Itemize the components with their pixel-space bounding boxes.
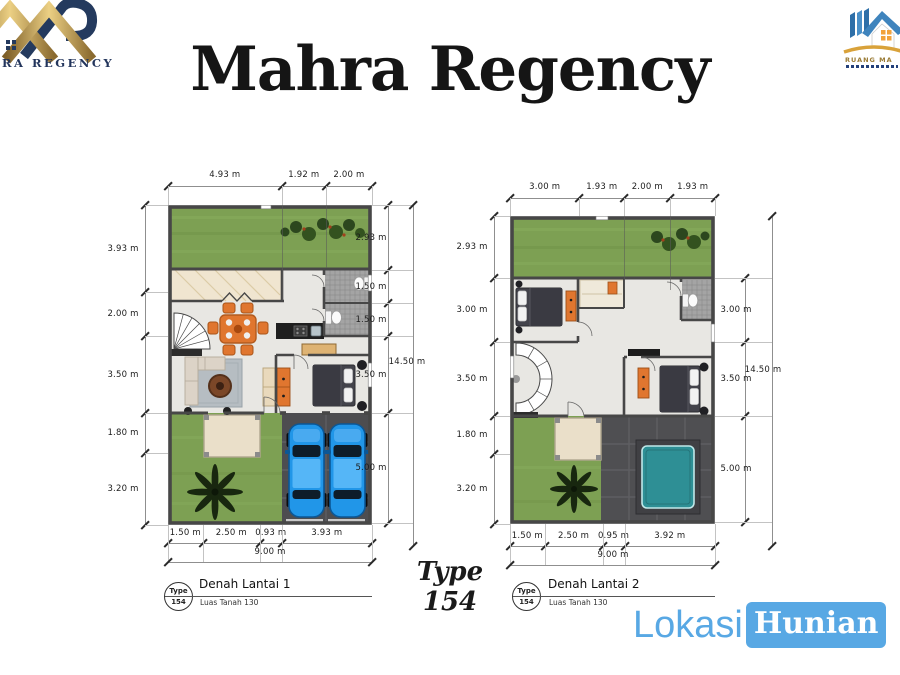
dim-extension bbox=[494, 342, 510, 343]
dim-label: 4.93 m bbox=[209, 170, 240, 180]
palm-tree bbox=[187, 464, 243, 520]
dim-line bbox=[145, 205, 146, 525]
plan1-label-rule bbox=[165, 596, 372, 597]
dim-extension bbox=[372, 525, 373, 562]
palm-tree bbox=[550, 465, 598, 513]
dim-label: 1.50 m bbox=[355, 282, 386, 292]
dim-label: 2.50 m bbox=[558, 531, 589, 541]
dim-line bbox=[168, 543, 372, 544]
dim-label: 1.93 m bbox=[677, 182, 708, 192]
dim-tick bbox=[409, 542, 418, 551]
dim-extension bbox=[282, 186, 283, 205]
dim-extension bbox=[145, 292, 168, 293]
dim-extension bbox=[670, 216, 671, 290]
porch-canopy bbox=[204, 415, 260, 457]
toilet bbox=[688, 294, 698, 307]
plan1-subtitle: Luas Tanah 130 bbox=[200, 598, 258, 607]
plan2-label-rule bbox=[513, 596, 715, 597]
dim-label: 2.93 m bbox=[355, 233, 386, 243]
dim-extension bbox=[145, 205, 168, 206]
dim-label: 3.20 m bbox=[456, 484, 487, 494]
dresser bbox=[566, 291, 576, 321]
dim-extension bbox=[545, 524, 546, 565]
dim-label-total: 14.50 m bbox=[389, 357, 426, 367]
dim-tick bbox=[368, 558, 377, 567]
badge-type-word: Type bbox=[165, 587, 192, 595]
dim-line bbox=[168, 562, 372, 563]
dim-label: 5.00 m bbox=[720, 464, 751, 474]
type-number: 154 bbox=[406, 588, 494, 618]
walk-in-closet bbox=[580, 280, 624, 308]
plan2-title: Denah Lantai 2 bbox=[548, 577, 640, 591]
dim-extension bbox=[372, 523, 413, 524]
plan2-subtitle: Luas Tanah 130 bbox=[549, 598, 607, 607]
dim-extension bbox=[624, 198, 625, 216]
dim-label: 1.92 m bbox=[288, 170, 319, 180]
dim-label: 1.80 m bbox=[107, 428, 138, 438]
dim-extension bbox=[624, 216, 625, 290]
dim-line bbox=[494, 216, 495, 524]
dim-extension bbox=[326, 205, 327, 268]
dim-extension bbox=[494, 524, 510, 525]
plan2-type-badge: Type 154 bbox=[512, 582, 541, 611]
dim-label: 3.92 m bbox=[654, 531, 685, 541]
dim-extension bbox=[579, 198, 580, 216]
dim-extension bbox=[372, 413, 413, 414]
badge-type-number: 154 bbox=[165, 598, 192, 606]
dim-extension bbox=[145, 453, 168, 454]
dim-extension bbox=[715, 342, 772, 343]
dim-label: 2.00 m bbox=[632, 182, 663, 192]
dim-line bbox=[168, 186, 372, 187]
dim-line bbox=[510, 546, 715, 547]
dim-label: 3.50 m bbox=[107, 370, 138, 380]
dim-line bbox=[510, 198, 715, 199]
dim-extension bbox=[203, 525, 204, 562]
dim-label: 3.50 m bbox=[456, 374, 487, 384]
badge-type-number: 154 bbox=[513, 598, 540, 606]
sideboard bbox=[302, 344, 336, 355]
dim-label: 1.50 m bbox=[355, 315, 386, 325]
dim-extension bbox=[715, 278, 772, 279]
dim-label-total: 14.50 m bbox=[745, 365, 782, 375]
garden-top bbox=[170, 207, 370, 269]
dim-label: 3.93 m bbox=[311, 528, 342, 538]
dim-extension bbox=[145, 336, 168, 337]
dim-extension bbox=[372, 336, 413, 337]
dim-extension bbox=[326, 186, 327, 205]
tv-console bbox=[628, 349, 660, 356]
garden-top bbox=[512, 218, 713, 278]
living-room bbox=[184, 357, 242, 415]
dim-extension bbox=[282, 205, 283, 300]
dim-extension bbox=[372, 303, 413, 304]
dim-label: 3.50 m bbox=[720, 374, 751, 384]
dim-extension bbox=[715, 416, 772, 417]
lokasihunian-watermark: Lokasi Hunian bbox=[633, 602, 886, 648]
dim-line bbox=[772, 216, 773, 546]
page-title: Mahra Regency bbox=[0, 34, 900, 105]
watermark-hunian: Hunian bbox=[746, 602, 887, 648]
dim-extension bbox=[715, 522, 772, 523]
dim-label: 2.50 m bbox=[216, 528, 247, 538]
dim-extension bbox=[372, 186, 373, 205]
floorplan-lantai-2 bbox=[510, 216, 715, 524]
dresser bbox=[638, 368, 649, 398]
kitchen-counter bbox=[276, 323, 324, 339]
dim-label-total: 9.00 m bbox=[597, 550, 628, 560]
dim-tick bbox=[711, 561, 720, 570]
dim-label: 1.50 m bbox=[170, 528, 201, 538]
type-154-block: Type 154 bbox=[406, 558, 494, 618]
dim-extension bbox=[494, 278, 510, 279]
dim-extension bbox=[510, 198, 511, 216]
dim-extension bbox=[715, 198, 716, 216]
dim-label: 5.00 m bbox=[355, 463, 386, 473]
type-word: Type bbox=[406, 558, 494, 588]
toilet bbox=[332, 311, 342, 324]
dim-label: 3.20 m bbox=[107, 484, 138, 494]
floorplan-lantai-1 bbox=[168, 205, 372, 525]
dim-extension bbox=[494, 216, 510, 217]
dim-label: 1.80 m bbox=[456, 430, 487, 440]
dim-label-total: 9.00 m bbox=[254, 547, 285, 557]
dim-tick bbox=[768, 542, 777, 551]
dim-extension bbox=[372, 270, 413, 271]
porch-canopy bbox=[555, 418, 601, 460]
page: RA REGENCY RUANG MA Mahra Regency bbox=[0, 0, 900, 675]
dim-label: 1.93 m bbox=[586, 182, 617, 192]
dim-label: 3.50 m bbox=[355, 370, 386, 380]
roof-deck bbox=[601, 416, 713, 522]
pool bbox=[642, 446, 694, 508]
dim-extension bbox=[494, 416, 510, 417]
dim-label: 2.00 m bbox=[107, 309, 138, 319]
dim-extension bbox=[145, 413, 168, 414]
watermark-lokasi: Lokasi bbox=[633, 602, 743, 648]
dim-extension bbox=[494, 454, 510, 455]
dim-label: 1.50 m bbox=[512, 531, 543, 541]
dim-label: 3.00 m bbox=[456, 305, 487, 315]
bathroom bbox=[682, 280, 713, 320]
dim-label: 2.00 m bbox=[333, 170, 364, 180]
dim-label: 2.93 m bbox=[456, 242, 487, 252]
dim-extension bbox=[145, 525, 168, 526]
dim-line bbox=[510, 565, 715, 566]
dim-label: 3.00 m bbox=[529, 182, 560, 192]
dim-extension bbox=[670, 198, 671, 216]
dim-extension bbox=[168, 186, 169, 205]
car-1 bbox=[285, 424, 328, 517]
dim-line bbox=[413, 205, 414, 546]
badge-type-word: Type bbox=[513, 587, 540, 595]
dim-extension bbox=[715, 524, 716, 565]
plan1-title: Denah Lantai 1 bbox=[199, 577, 291, 591]
dim-label: 3.00 m bbox=[720, 305, 751, 315]
dim-label: 3.93 m bbox=[107, 244, 138, 254]
dim-extension bbox=[372, 205, 413, 206]
plan1-type-badge: Type 154 bbox=[164, 582, 193, 611]
